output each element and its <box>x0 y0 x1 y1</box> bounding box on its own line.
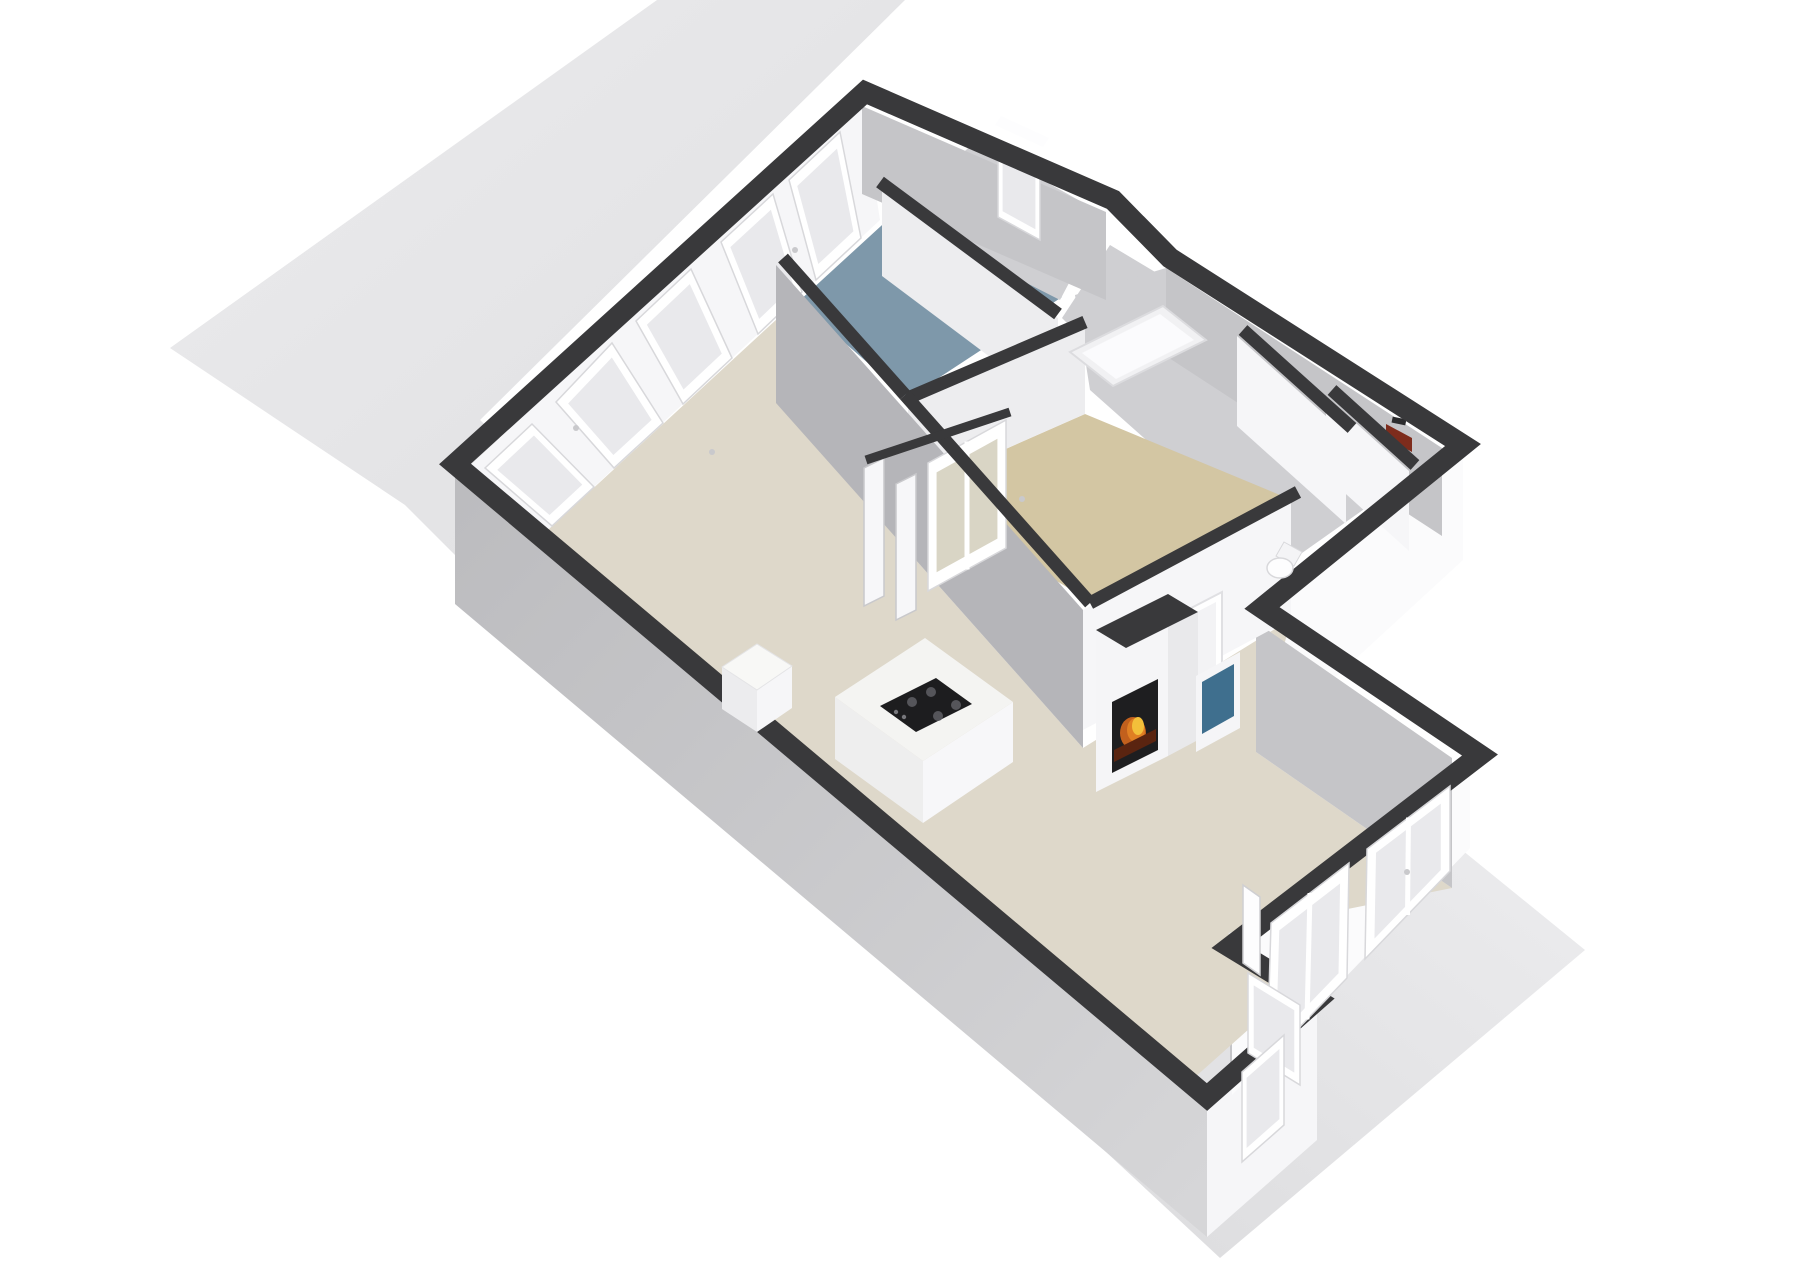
handle <box>1019 496 1025 502</box>
burner <box>926 687 936 697</box>
fire-flame-core <box>1132 717 1144 735</box>
burner <box>907 697 917 707</box>
handle <box>792 247 798 253</box>
window-mullion <box>1307 893 1310 1020</box>
burner-knob <box>894 710 898 714</box>
burner-knob <box>902 715 906 719</box>
closet-stub-a <box>864 458 884 606</box>
burner <box>933 711 943 721</box>
floor-plan-svg <box>0 0 1800 1273</box>
burner <box>951 700 961 710</box>
handle <box>709 449 715 455</box>
floor-plan-screenshot <box>0 0 1800 1273</box>
closet-stub-b <box>896 474 916 620</box>
toilet-bowl <box>1267 558 1293 578</box>
notch-open-door <box>1243 885 1260 975</box>
handle <box>573 425 579 431</box>
handle <box>1404 869 1410 875</box>
window-mullion <box>1408 818 1409 916</box>
